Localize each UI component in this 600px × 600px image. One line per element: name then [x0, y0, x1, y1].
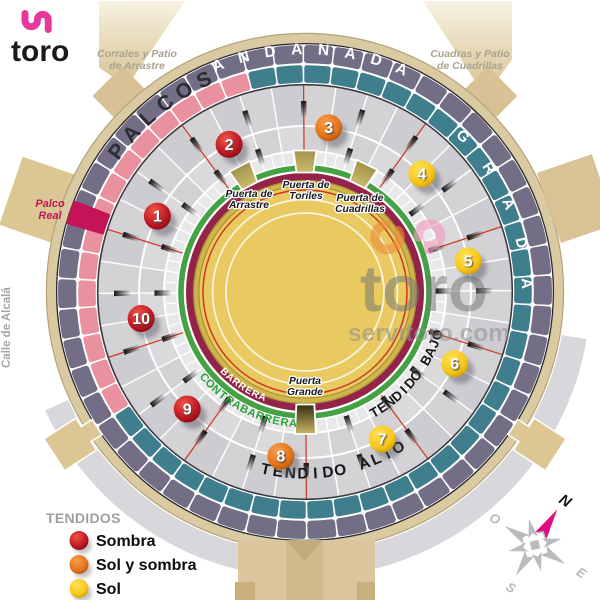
- svg-text:2: 2: [225, 137, 234, 154]
- svg-text:de Cuadrillas: de Cuadrillas: [437, 60, 503, 72]
- svg-text:8: 8: [276, 449, 285, 466]
- svg-text:A: A: [288, 418, 297, 431]
- svg-text:Sol: Sol: [96, 581, 121, 598]
- svg-text:Corrales y Patio: Corrales y Patio: [97, 48, 178, 60]
- svg-text:de Arrastre: de Arrastre: [109, 60, 165, 72]
- svg-text:3: 3: [324, 120, 333, 137]
- svg-text:Puerta de: Puerta de: [226, 189, 273, 200]
- svg-text:TENDIDOS: TENDIDOS: [46, 510, 121, 526]
- svg-text:Puerta: Puerta: [289, 376, 321, 387]
- svg-text:Sombra: Sombra: [96, 533, 156, 550]
- svg-text:9: 9: [183, 402, 192, 419]
- svg-text:Palco: Palco: [35, 198, 65, 210]
- svg-text:Cuadrillas: Cuadrillas: [335, 204, 385, 215]
- svg-text:A: A: [291, 41, 303, 58]
- svg-text:Puerta de: Puerta de: [337, 193, 384, 204]
- svg-text:5: 5: [464, 253, 473, 270]
- svg-text:1: 1: [153, 209, 162, 226]
- svg-text:Calle de Alcalá: Calle de Alcalá: [1, 287, 13, 368]
- svg-text:Toriles: Toriles: [289, 191, 323, 202]
- svg-text:N: N: [317, 42, 329, 60]
- svg-text:6: 6: [450, 356, 459, 373]
- svg-text:Sol y sombra: Sol y sombra: [96, 557, 197, 574]
- svg-text:toro: toro: [11, 35, 69, 68]
- svg-text:7: 7: [378, 432, 387, 449]
- svg-text:4: 4: [417, 167, 426, 184]
- svg-text:10: 10: [132, 311, 150, 328]
- svg-text:A: A: [518, 278, 535, 290]
- svg-text:Puerta de: Puerta de: [283, 180, 330, 191]
- svg-text:Real: Real: [38, 210, 62, 222]
- svg-text:Arrastre: Arrastre: [228, 200, 269, 211]
- svg-text:Grande: Grande: [287, 387, 323, 398]
- svg-text:D: D: [297, 465, 308, 482]
- svg-text:servitoro.com: servitoro.com: [348, 320, 510, 347]
- svg-text:Cuadras y Patio: Cuadras y Patio: [430, 48, 510, 60]
